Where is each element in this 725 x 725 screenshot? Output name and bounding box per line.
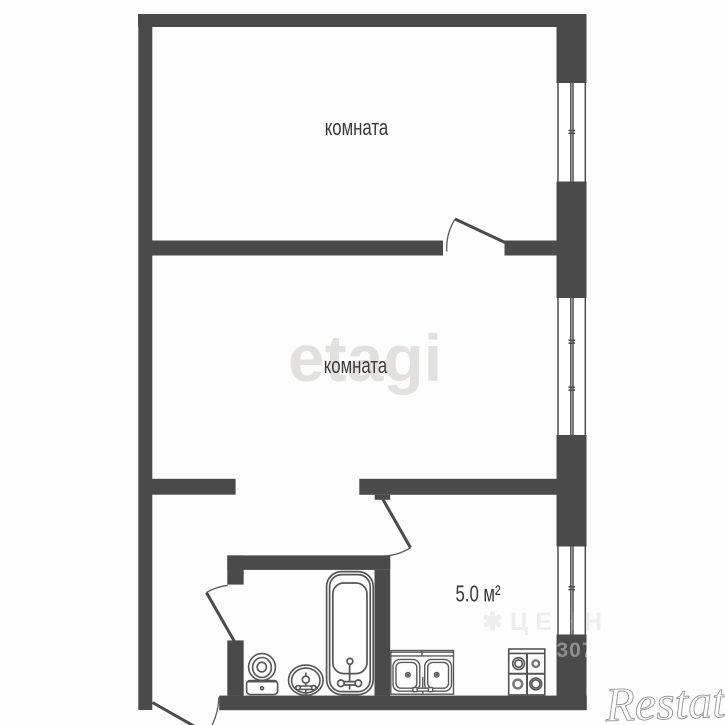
svg-text:комната: комната xyxy=(325,116,388,141)
svg-text:комната: комната xyxy=(324,354,387,379)
svg-text:307: 307 xyxy=(557,639,595,662)
svg-text:5.0 м²: 5.0 м² xyxy=(455,582,500,607)
svg-text:✱ЦЕНН: ✱ЦЕНН xyxy=(482,608,609,636)
svg-text:Restate: Restate xyxy=(604,674,725,725)
